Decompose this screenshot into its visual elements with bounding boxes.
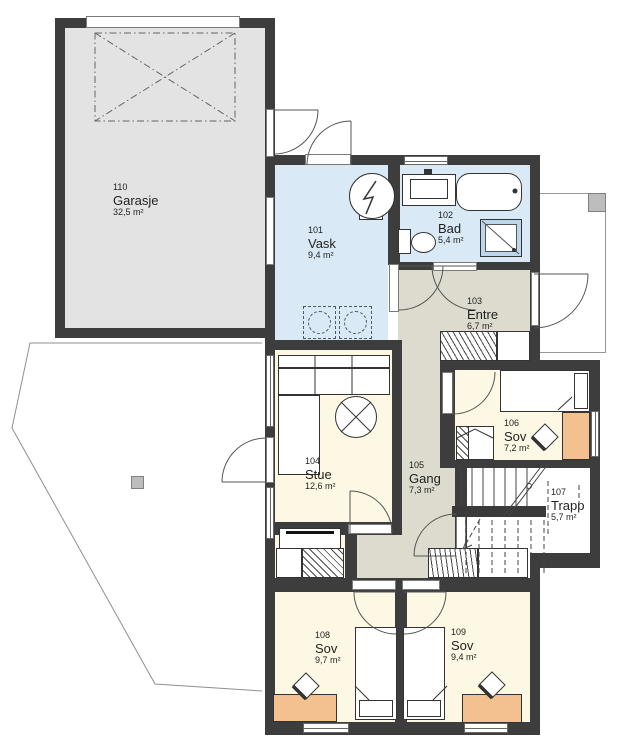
bed-108-pillow: [359, 700, 393, 717]
floor-plan: 110 Garasje 32,5 m² 101 Vask 9,4 m² 102 …: [0, 0, 623, 749]
sink-tap-icon: [424, 169, 432, 175]
bed-106-pillow: [574, 373, 588, 409]
room-area: 9,7 m²: [315, 655, 341, 667]
vask-entre-door-opening: [389, 264, 399, 312]
room-label-sov-109: 109 Sov 9,4 m²: [451, 627, 477, 664]
room-name: Bad: [438, 222, 464, 236]
sofa-back: [278, 355, 390, 368]
floor-garasje: [65, 28, 265, 328]
terrace-outline: [12, 343, 262, 691]
room-label-sov-106: 106 Sov 7,2 m²: [504, 418, 530, 455]
wardrobe-106-hatch: [456, 426, 469, 460]
bathtub-icon: [456, 173, 522, 211]
room-number: 101: [308, 225, 336, 237]
desk-109: [462, 694, 522, 723]
desk-106: [562, 412, 590, 460]
entre-cabinet: [497, 331, 530, 361]
wall: [530, 568, 540, 735]
porch-post: [588, 193, 606, 212]
toilet-icon: [411, 232, 436, 253]
sov-109-closet-hatched: [428, 548, 478, 578]
room-name: Vask: [308, 237, 336, 251]
sov-108-window: [303, 723, 349, 733]
wall: [590, 360, 600, 568]
terrace-door-arc: [222, 438, 266, 482]
stue-terrace-door-opening: [266, 437, 274, 483]
sink-basin: [410, 179, 448, 199]
stue-window-upper: [266, 355, 274, 427]
sov-108-closet-plain: [276, 548, 302, 578]
room-label-gang: 105 Gang 7,3 m²: [409, 460, 441, 497]
garage-vask-opening: [266, 197, 274, 265]
sov-106-door-opening: [442, 372, 453, 414]
room-name: Sov: [315, 642, 341, 656]
room-number: 103: [467, 296, 498, 308]
room-area: 12,6 m²: [305, 481, 336, 493]
stair-rail: [452, 506, 546, 517]
room-name: Sov: [451, 639, 477, 653]
dryer-drum-icon: [344, 311, 367, 334]
sov-106-window: [591, 411, 599, 457]
room-area: 9,4 m²: [308, 250, 336, 262]
sov-109-window: [464, 723, 508, 733]
wall: [440, 360, 600, 370]
wall: [55, 328, 275, 338]
room-number: 110: [113, 182, 159, 194]
room-number: 107: [551, 487, 584, 499]
wall: [440, 460, 600, 468]
bad-window: [404, 156, 448, 165]
wall: [265, 340, 402, 350]
room-name: Entre: [467, 308, 498, 322]
stue-gang-door-opening: [348, 524, 392, 534]
room-name: Sov: [504, 430, 530, 444]
bed-109-pillow: [407, 700, 441, 717]
room-number: 105: [409, 460, 441, 472]
wall: [392, 350, 402, 535]
room-label-entre: 103 Entre 6,7 m²: [467, 296, 498, 333]
room-area: 32,5 m²: [113, 207, 159, 219]
room-label-vask: 101 Vask 9,4 m²: [308, 225, 336, 262]
room-label-sov-108: 108 Sov 9,7 m²: [315, 630, 341, 667]
room-label-trapp: 107 Trapp 5,7 m²: [551, 487, 584, 524]
sov-109-closet-plain: [478, 548, 528, 578]
garage-door-opening: [86, 16, 240, 28]
sov-109-door-opening: [402, 580, 440, 590]
room-number: 106: [504, 418, 530, 430]
wall: [345, 535, 357, 578]
room-name: Trapp: [551, 499, 584, 513]
wall: [530, 553, 600, 568]
room-label-stue: 104 Stue 12,6 m²: [305, 456, 336, 493]
shower-tray: [485, 224, 517, 252]
sofa-seat: [278, 368, 390, 395]
stue-window-lower: [266, 487, 274, 539]
room-number: 109: [451, 627, 477, 639]
room-number: 102: [438, 210, 464, 222]
room-label-bad: 102 Bad 5,4 m²: [438, 210, 464, 247]
bad-entre-door-opening: [433, 262, 477, 271]
room-area: 9,4 m²: [451, 652, 477, 664]
sov-108-door-opening: [352, 580, 396, 590]
room-area: 7,3 m²: [409, 485, 441, 497]
garage-side-door-opening: [266, 109, 274, 157]
toilet-tank: [398, 229, 411, 254]
wall: [55, 18, 65, 338]
terrace-post: [131, 476, 144, 489]
room-number: 108: [315, 630, 341, 642]
front-door-opening: [531, 272, 539, 326]
tv-icon: [286, 531, 334, 534]
room-area: 6,7 m²: [467, 321, 498, 333]
entry-porch-outline: [533, 193, 606, 353]
entre-wardrobe: [440, 331, 497, 361]
room-area: 5,4 m²: [438, 235, 464, 247]
room-name: Garasje: [113, 194, 159, 208]
room-area: 5,7 m²: [551, 512, 584, 524]
washing-machine-drum-icon: [308, 311, 331, 334]
room-number: 104: [305, 456, 336, 468]
vask-entry-door-opening: [305, 154, 351, 165]
round-table-icon: [335, 396, 377, 438]
room-name: Gang: [409, 472, 441, 486]
sov-108-closet-hatched: [302, 548, 344, 578]
room-label-garasje: 110 Garasje 32,5 m²: [113, 182, 159, 219]
desk-108: [273, 694, 337, 722]
garage-side-door-arc: [274, 110, 318, 154]
room-name: Stue: [305, 468, 336, 482]
water-heater-icon: [349, 173, 395, 219]
wall: [530, 155, 540, 370]
room-area: 7,2 m²: [504, 443, 530, 455]
